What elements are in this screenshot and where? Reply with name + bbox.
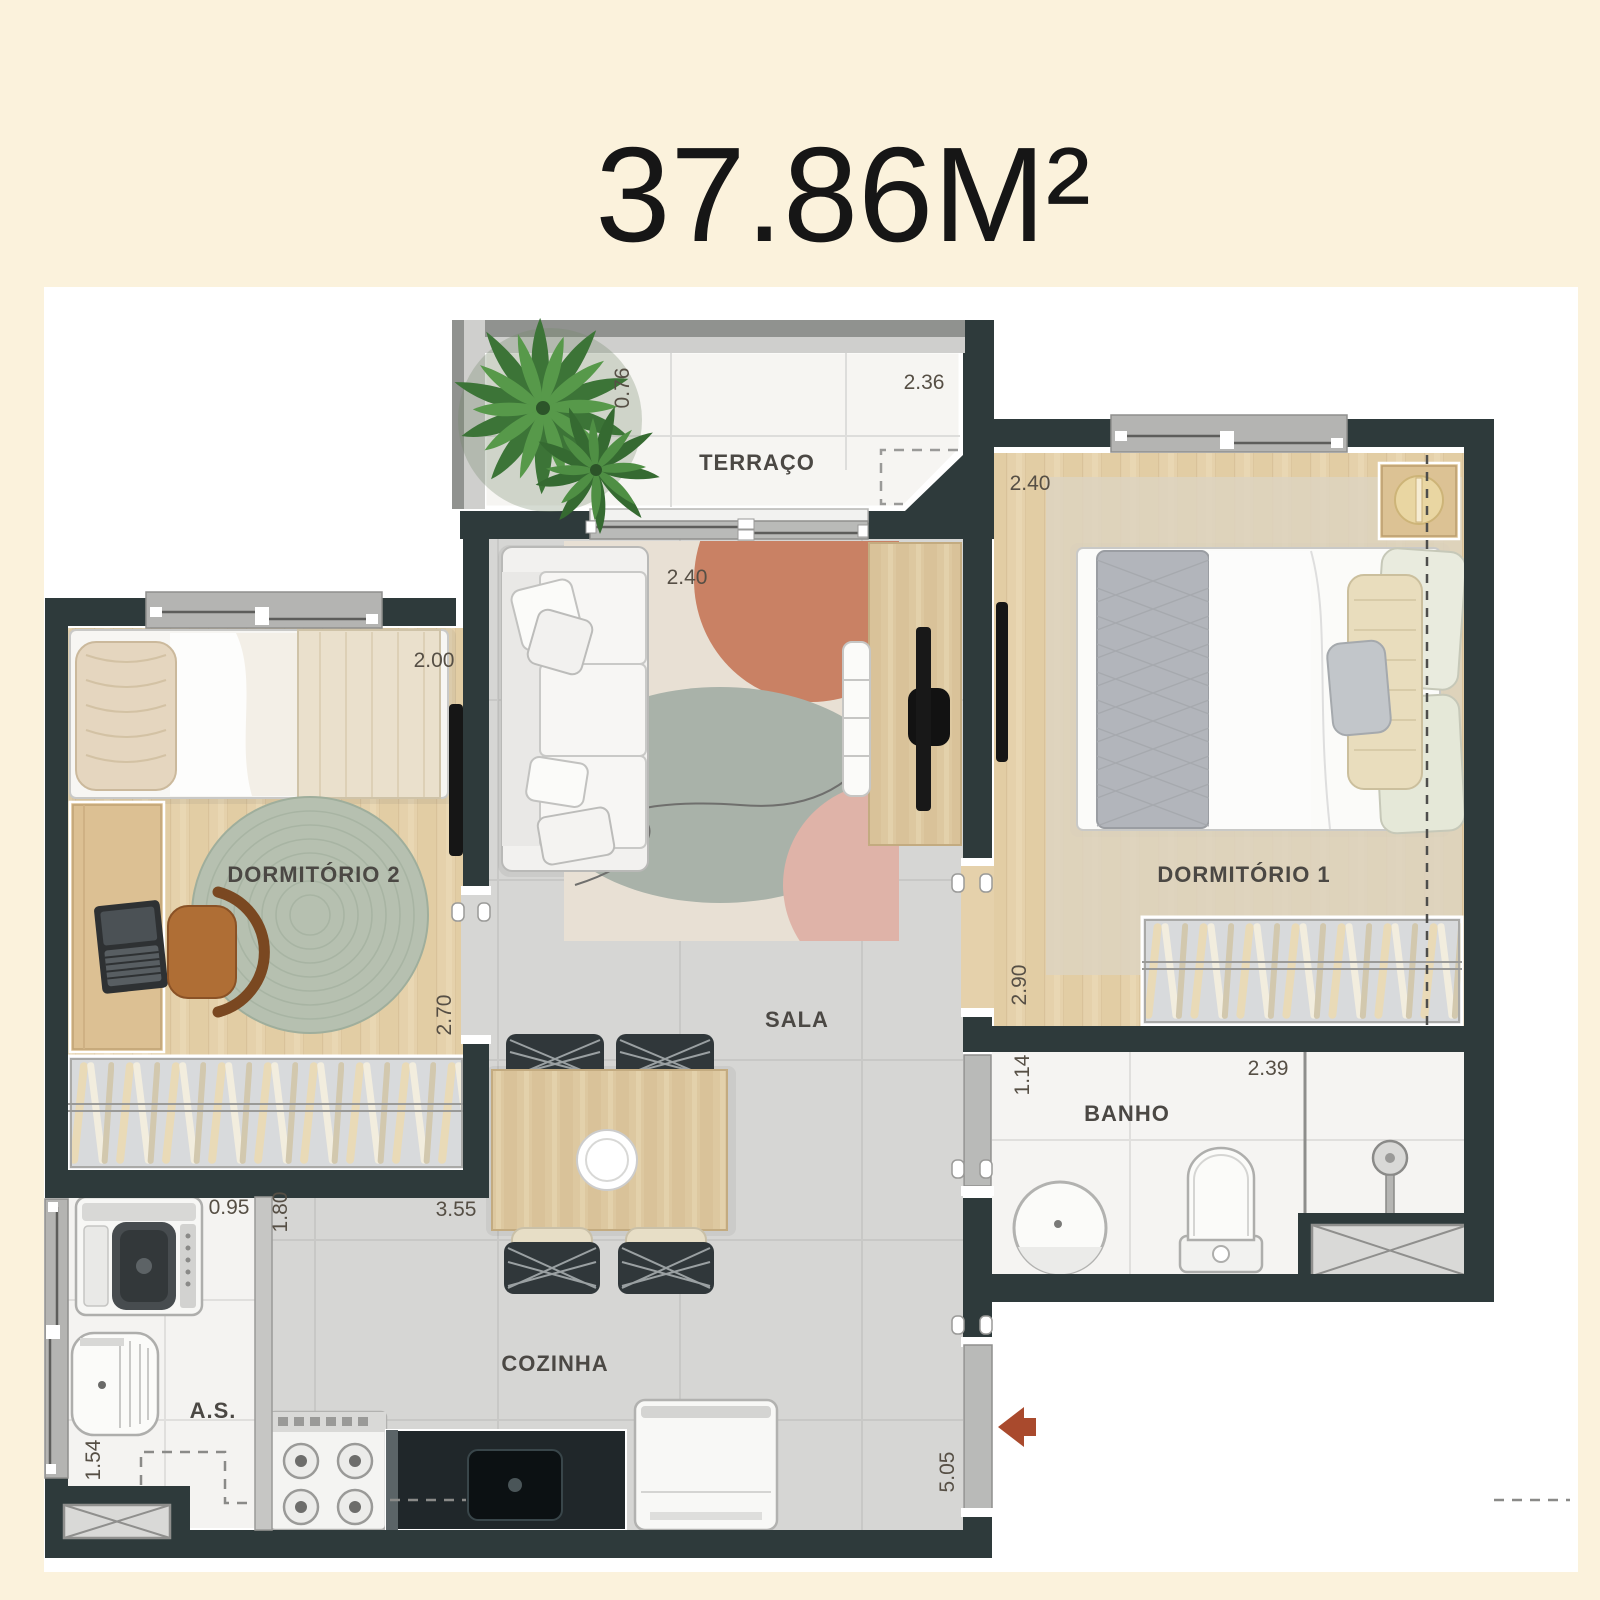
svg-text:2.39: 2.39	[1248, 1057, 1289, 1080]
svg-text:1.14: 1.14	[1011, 1054, 1034, 1095]
svg-text:0.95: 0.95	[209, 1196, 250, 1219]
svg-text:DORMITÓRIO 2: DORMITÓRIO 2	[227, 862, 400, 887]
svg-text:3.55: 3.55	[436, 1198, 477, 1221]
svg-text:2.70: 2.70	[433, 995, 456, 1036]
svg-text:0.76: 0.76	[611, 368, 634, 409]
svg-text:37.86M²: 37.86M²	[595, 119, 1090, 270]
svg-text:1.80: 1.80	[269, 1192, 292, 1233]
svg-text:2.36: 2.36	[904, 371, 945, 394]
svg-text:2.40: 2.40	[1010, 472, 1051, 495]
svg-text:BANHO: BANHO	[1084, 1101, 1170, 1126]
svg-text:2.40: 2.40	[667, 566, 708, 589]
svg-text:DORMITÓRIO 1: DORMITÓRIO 1	[1157, 862, 1330, 887]
svg-text:A.S.: A.S.	[190, 1398, 237, 1423]
svg-text:2.90: 2.90	[1008, 965, 1031, 1006]
svg-text:TERRAÇO: TERRAÇO	[699, 450, 815, 475]
svg-text:1.54: 1.54	[82, 1439, 105, 1480]
svg-text:5.05: 5.05	[936, 1452, 959, 1493]
svg-text:COZINHA: COZINHA	[501, 1351, 608, 1376]
svg-text:SALA: SALA	[765, 1007, 829, 1032]
svg-text:2.00: 2.00	[414, 649, 455, 672]
